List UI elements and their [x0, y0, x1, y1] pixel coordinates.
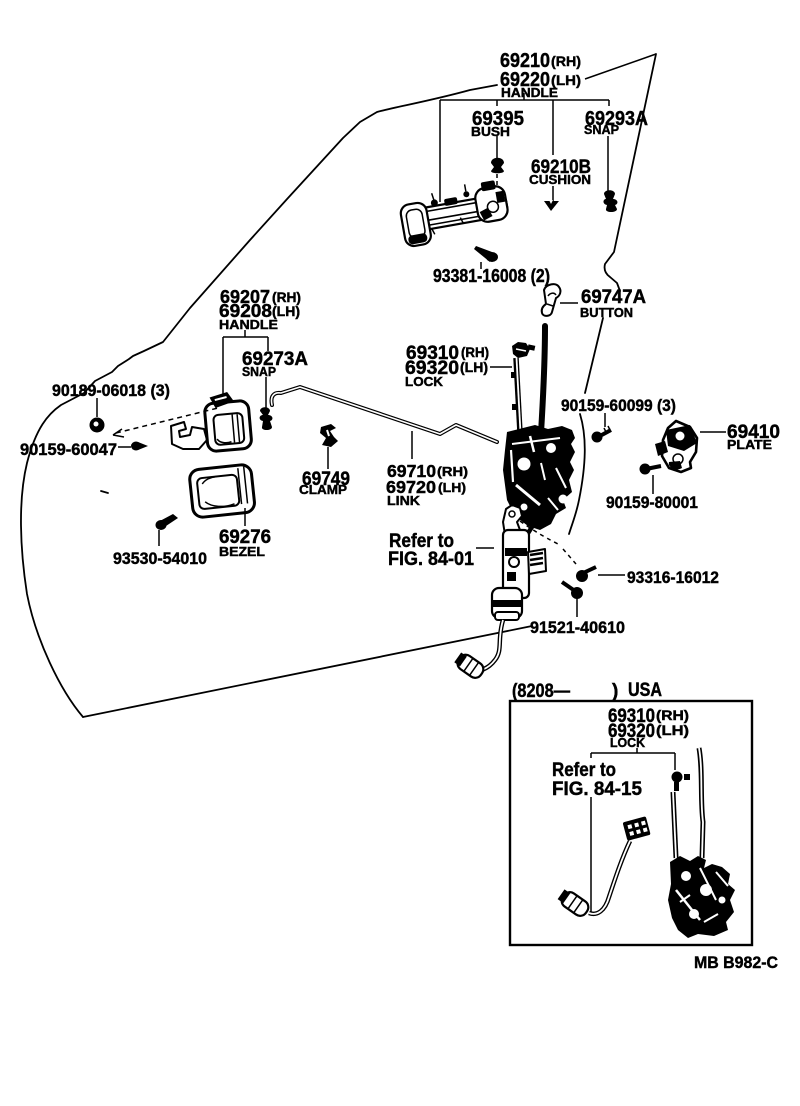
- svg-text:Refer to: Refer to: [552, 760, 616, 781]
- svg-text:SNAP: SNAP: [242, 364, 276, 379]
- svg-text:FIG. 84-01: FIG. 84-01: [388, 549, 474, 570]
- svg-text:LINK: LINK: [387, 493, 421, 508]
- svg-text:(LH): (LH): [438, 480, 466, 495]
- svg-text:BUSH: BUSH: [471, 124, 510, 139]
- svg-text:93381-16008 (2): 93381-16008 (2): [433, 266, 550, 286]
- svg-text:(RH): (RH): [656, 708, 689, 723]
- svg-text:LOCK: LOCK: [405, 374, 444, 389]
- svg-text:BUTTON: BUTTON: [580, 305, 633, 320]
- svg-text:(8208—: (8208—: [512, 681, 570, 702]
- svg-text:MB B982-C: MB B982-C: [694, 953, 778, 972]
- svg-text:90159-60047: 90159-60047: [20, 440, 117, 459]
- svg-text:(RH): (RH): [551, 53, 581, 69]
- svg-text:USA: USA: [628, 680, 662, 701]
- svg-text:(RH): (RH): [437, 464, 468, 479]
- svg-text:90159-80001: 90159-80001: [606, 493, 698, 512]
- svg-text:CLAMP: CLAMP: [299, 482, 347, 497]
- svg-text:91521-40610: 91521-40610: [530, 618, 625, 637]
- svg-text:(LH): (LH): [460, 360, 488, 375]
- svg-text:PLATE: PLATE: [727, 437, 772, 452]
- svg-text:90159-60099 (3): 90159-60099 (3): [561, 396, 676, 415]
- svg-text:FIG. 84-15: FIG. 84-15: [552, 779, 642, 800]
- svg-text:93530-54010: 93530-54010: [113, 549, 207, 568]
- svg-text:(RH): (RH): [272, 290, 301, 305]
- svg-text:): ): [612, 681, 618, 702]
- svg-text:(LH): (LH): [656, 723, 689, 738]
- svg-text:SNAP: SNAP: [584, 122, 619, 137]
- svg-text:(RH): (RH): [461, 345, 489, 360]
- svg-text:LOCK: LOCK: [610, 735, 646, 750]
- svg-text:HANDLE: HANDLE: [219, 317, 278, 332]
- svg-text:HANDLE: HANDLE: [501, 85, 558, 100]
- svg-text:BEZEL: BEZEL: [219, 544, 265, 559]
- svg-text:CUSHION: CUSHION: [529, 172, 591, 187]
- svg-text:93316-16012: 93316-16012: [627, 568, 719, 587]
- svg-text:90189-06018 (3): 90189-06018 (3): [52, 381, 170, 400]
